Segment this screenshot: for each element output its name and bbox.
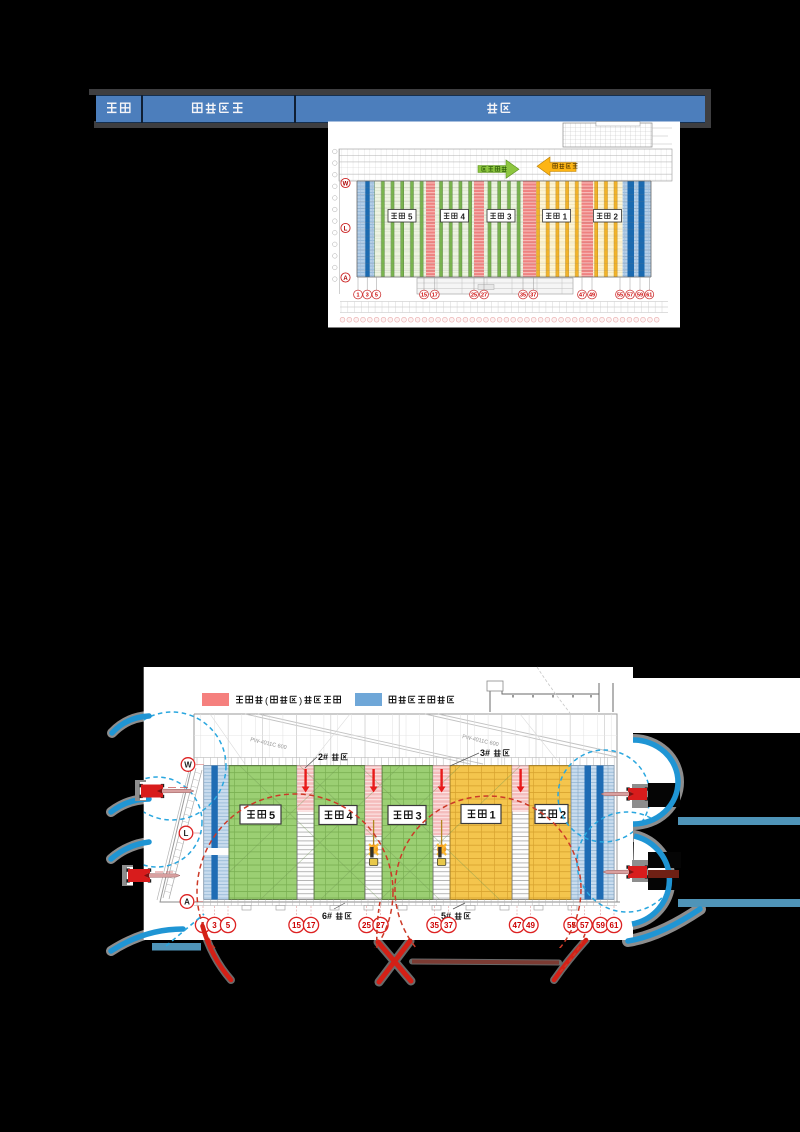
svg-text:15: 15 <box>421 292 427 298</box>
svg-text:61: 61 <box>610 921 619 930</box>
svg-text:3: 3 <box>415 811 421 823</box>
svg-text:27: 27 <box>481 292 487 298</box>
svg-text:5: 5 <box>375 292 378 298</box>
svg-text:17: 17 <box>432 292 438 298</box>
svg-text:W: W <box>184 761 192 770</box>
svg-text:3: 3 <box>212 921 217 930</box>
svg-text:W: W <box>343 181 349 187</box>
svg-text:61: 61 <box>646 292 652 298</box>
svg-text:3: 3 <box>507 212 512 221</box>
svg-text:57: 57 <box>580 921 589 930</box>
svg-text:6#: 6# <box>322 911 332 921</box>
svg-text:A: A <box>184 898 190 907</box>
svg-text:5: 5 <box>226 921 231 930</box>
svg-text:37: 37 <box>530 292 536 298</box>
svg-text:47: 47 <box>513 921 522 930</box>
svg-text:4: 4 <box>460 212 465 221</box>
svg-text:25: 25 <box>362 921 371 930</box>
svg-text:55: 55 <box>617 292 623 298</box>
svg-text:49: 49 <box>589 292 595 298</box>
svg-text:1: 1 <box>489 810 495 822</box>
svg-text:35: 35 <box>520 292 526 298</box>
svg-text:1: 1 <box>357 292 360 298</box>
svg-text:5: 5 <box>408 212 413 221</box>
svg-text:A: A <box>343 276 348 282</box>
svg-text:2#: 2# <box>318 752 328 762</box>
svg-text:L: L <box>184 829 189 838</box>
svg-text:49: 49 <box>526 921 535 930</box>
svg-text:35: 35 <box>430 921 439 930</box>
svg-text:3#: 3# <box>480 748 490 758</box>
svg-text:2: 2 <box>613 212 618 221</box>
svg-text:37: 37 <box>444 921 453 930</box>
svg-text:55: 55 <box>567 921 576 930</box>
svg-text:15: 15 <box>292 921 301 930</box>
svg-text:L: L <box>344 226 348 232</box>
svg-text:): ) <box>299 696 302 707</box>
svg-text:59: 59 <box>596 921 605 930</box>
svg-text:25: 25 <box>471 292 477 298</box>
svg-text:47: 47 <box>579 292 585 298</box>
svg-text:3: 3 <box>366 292 369 298</box>
svg-text:5: 5 <box>269 810 275 822</box>
svg-text:17: 17 <box>307 921 316 930</box>
svg-text:1: 1 <box>563 212 568 221</box>
svg-text:59: 59 <box>637 292 643 298</box>
svg-text:57: 57 <box>627 292 633 298</box>
